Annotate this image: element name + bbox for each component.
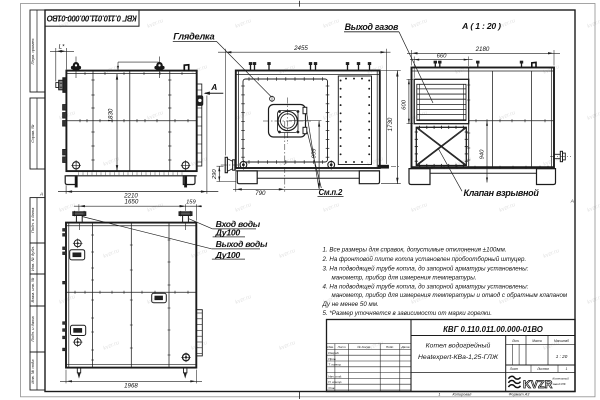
svg-text:Листов: Листов	[536, 367, 549, 371]
svg-text:2180: 2180	[475, 46, 490, 53]
svg-text:3. На подводящей трубе котла,: 3. На подводящей трубе котла, до запорно…	[323, 266, 529, 273]
svg-text:2455: 2455	[293, 45, 308, 52]
svg-text:А ( 1 : 20 ): А ( 1 : 20 )	[461, 21, 501, 31]
svg-text:1. Все размеры для справок, до: 1. Все размеры для справок, допустимые о…	[323, 247, 507, 254]
svg-text:Взам. инв. №: Взам. инв. №	[30, 277, 35, 303]
svg-text:манометр, прибор для измерения: манометр, прибор для измерения температу…	[332, 292, 568, 299]
svg-text:1650: 1650	[125, 199, 139, 206]
svg-text:Лит.: Лит.	[511, 339, 520, 343]
svg-text:1 : 20: 1 : 20	[556, 354, 568, 359]
svg-text:2. На фронтовой плите котла ус: 2. На фронтовой плите котла установлен п…	[322, 256, 527, 263]
svg-text:1968: 1968	[124, 382, 138, 389]
svg-text:Справ. №: Справ. №	[30, 124, 35, 143]
svg-text:Heatexpert-КВа-1,25-ГЛЖ: Heatexpert-КВа-1,25-ГЛЖ	[418, 354, 499, 361]
svg-text:Разраб.: Разраб.	[328, 351, 339, 355]
svg-text:Лист: Лист	[509, 367, 519, 371]
svg-text:L*: L*	[59, 43, 65, 50]
svg-text:А: А	[39, 192, 43, 197]
svg-text:Клапан взрывной: Клапан взрывной	[464, 188, 540, 198]
svg-text:Т. контр.: Т. контр.	[328, 363, 341, 367]
svg-text:Масштаб: Масштаб	[554, 339, 569, 343]
svg-text:Лист: Лист	[337, 345, 346, 349]
svg-text:Перв. примен.: Перв. примен.	[30, 38, 35, 65]
svg-text:Выход газов: Выход газов	[345, 22, 399, 32]
svg-text:Ду100: Ду100	[215, 228, 241, 238]
svg-text:5. *Размер уточняется в зависи: 5. *Размер уточняется в зависимости от м…	[323, 310, 492, 317]
svg-text:Н. контр.: Н. контр.	[328, 380, 342, 384]
svg-text:1: 1	[566, 367, 568, 371]
svg-text:Котельный: Котельный	[553, 377, 570, 381]
svg-text:4. На подводящей трубе котла,: 4. На подводящей трубе котла, до запорно…	[323, 283, 529, 290]
svg-text:манометр, прибор для измерения: манометр, прибор для измерения температу…	[332, 274, 477, 281]
svg-text:Подп. и дата: Подп. и дата	[30, 207, 35, 233]
svg-text:940: 940	[480, 149, 486, 160]
svg-text:Ду не менее 50 мм.: Ду не менее 50 мм.	[322, 301, 379, 308]
svg-text:А: А	[210, 82, 217, 92]
svg-text:Выход воды: Выход воды	[216, 239, 268, 249]
svg-text:КВГ 0.110.011.00.000-01ВО: КВГ 0.110.011.00.000-01ВО	[47, 13, 137, 22]
svg-text:Изм.: Изм.	[327, 345, 334, 349]
svg-text:290: 290	[212, 169, 218, 181]
svg-text:Инв. № дубл.: Инв. № дубл.	[30, 246, 35, 271]
svg-text:159: 159	[186, 200, 196, 206]
svg-text:Нач. отд.: Нач. отд.	[328, 374, 342, 378]
svg-text:660: 660	[437, 53, 448, 59]
svg-text:А: А	[570, 199, 574, 204]
svg-text:Копировал: Копировал	[453, 393, 473, 397]
svg-text:Утв.: Утв.	[328, 386, 335, 390]
svg-text:KVZR: KVZR	[523, 379, 553, 391]
svg-text:Котел водогрейный: Котел водогрейный	[426, 342, 491, 350]
svg-text:Ду100: Ду100	[215, 250, 241, 260]
svg-text:1830: 1830	[108, 108, 115, 122]
svg-text:Подп. и дата: Подп. и дата	[30, 316, 35, 342]
svg-text:Формат А3: Формат А3	[509, 393, 531, 397]
svg-text:КВГ 0.110.011.00.000-01ВО: КВГ 0.110.011.00.000-01ВО	[443, 325, 543, 334]
svg-text:Масса: Масса	[532, 339, 542, 343]
svg-text:1: 1	[438, 393, 440, 397]
svg-text:Гляделка: Гляделка	[173, 31, 214, 41]
svg-text:№ докум.: № докум.	[357, 345, 371, 349]
svg-text:1730: 1730	[387, 117, 394, 131]
svg-text:Инв. № подл.: Инв. № подл.	[30, 358, 35, 383]
svg-text:790: 790	[255, 190, 266, 197]
svg-text:Пров.: Пров.	[328, 357, 336, 361]
svg-text:600: 600	[401, 99, 407, 110]
svg-text:Подп.: Подп.	[386, 345, 394, 349]
svg-text:Дата: Дата	[400, 345, 409, 349]
svg-text:См.п.2: См.п.2	[318, 188, 342, 197]
svg-text:завод РФ: завод РФ	[552, 382, 567, 386]
